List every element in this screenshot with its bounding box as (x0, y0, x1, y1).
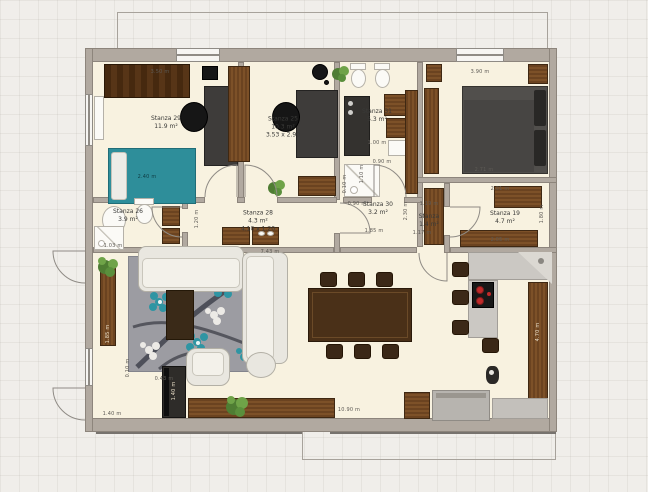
cabinet-box[interactable] (404, 392, 430, 419)
room-name: Stanza 25 (266, 115, 300, 123)
plant[interactable] (224, 394, 250, 420)
dimension-label[interactable]: 2.30 m (403, 202, 409, 221)
room-name: Stanza 19 (490, 210, 520, 218)
dimension-label[interactable]: 2.71 m (475, 167, 494, 173)
office-chair[interactable] (180, 102, 208, 132)
nightstand[interactable] (528, 64, 548, 84)
dimension-label[interactable]: 0.10 m (125, 359, 131, 378)
stool[interactable] (452, 290, 469, 305)
dining-chair[interactable] (376, 272, 393, 287)
terrace-top-outline (117, 12, 548, 50)
dimension-label[interactable]: 7.43 m (261, 249, 280, 255)
burner (476, 286, 484, 294)
room-area: 11.9 m² (151, 123, 181, 131)
dimension-label[interactable]: 0.10 m (342, 175, 348, 194)
dimension-label[interactable]: 0.43 m (155, 376, 174, 382)
desk[interactable] (296, 90, 338, 158)
room-label-stanza-19[interactable]: Stanza 19 4.7 m² (490, 210, 520, 226)
sofa-seat (246, 256, 274, 360)
room-size: 4.10 x 1.20 (241, 225, 275, 233)
door-exterior-left[interactable] (53, 388, 85, 420)
dimension-label[interactable]: 1.20 m (194, 210, 200, 229)
room-area: 3.2 m² (363, 209, 393, 217)
room-label-closet[interactable]: Stanza 1.4 m² (419, 213, 439, 229)
stool[interactable] (426, 64, 442, 82)
dimension-label[interactable]: 3.90 m (471, 69, 490, 75)
pet-dog[interactable] (486, 366, 499, 384)
window-bedroom[interactable] (456, 48, 504, 62)
dimension-label[interactable]: 1.80 m (539, 205, 545, 224)
room-label-stanza-28[interactable]: Stanza 28 4.3 m² 4.10 x 1.20 (241, 209, 275, 232)
room-area: 10.3 m² (266, 123, 300, 131)
tall-cabinet[interactable] (405, 90, 418, 194)
room-area: 4.7 m² (490, 218, 520, 226)
room-area: 1.4 m² (419, 221, 439, 229)
bath-cabinet[interactable] (162, 228, 180, 244)
room-area: 4.3 m² (241, 217, 275, 225)
plant[interactable] (330, 64, 350, 84)
burner-dot (487, 292, 491, 296)
dimension-label[interactable]: 1.00 m (368, 140, 387, 146)
dimension-label[interactable]: 2.01 m (491, 186, 510, 192)
wardrobe[interactable] (104, 64, 190, 98)
dining-table-top (312, 292, 408, 338)
dimension-label[interactable]: 1.10 m (359, 165, 365, 184)
floor-plan-canvas: Stanza 29 11.9 m² Stanza 25 10.3 m² 3.53… (0, 0, 648, 492)
dimension-label[interactable]: 10.90 m (338, 407, 360, 413)
door-entrance[interactable] (53, 251, 85, 283)
room-name: Stanza 31 (362, 108, 392, 116)
dining-chair[interactable] (348, 272, 365, 287)
dimension-label[interactable]: 1.40 m (103, 411, 122, 417)
appliance-controls (436, 393, 486, 398)
floor-lamp[interactable] (312, 64, 328, 80)
dimension-label[interactable]: 3.50 m (151, 69, 170, 75)
plant[interactable] (96, 256, 120, 278)
dimension-label[interactable]: 1.03 m (104, 243, 123, 249)
wall-corridor-c[interactable] (277, 197, 337, 203)
dining-chair[interactable] (354, 344, 371, 359)
room-area: 3.9 m² (113, 216, 143, 224)
bath-cabinet[interactable] (162, 206, 180, 226)
window-top-left[interactable] (176, 48, 220, 62)
room-name: Stanza 30 (363, 201, 393, 209)
plant[interactable] (266, 178, 286, 198)
coffee-table[interactable] (166, 290, 194, 340)
stool[interactable] (482, 338, 499, 353)
wardrobe[interactable] (424, 88, 439, 174)
tall-kitchen-cabinet[interactable] (528, 282, 548, 410)
window-left-upper[interactable] (85, 94, 93, 146)
pillow (111, 152, 127, 200)
room-label-stanza-25[interactable]: Stanza 25 10.3 m² 3.53 x 2.90 (266, 115, 300, 138)
wall-corridor-b[interactable] (237, 197, 245, 203)
room-label-stanza-31[interactable]: Stanza 31 5.3 m² (362, 108, 392, 124)
room-name: Stanza 28 (241, 209, 275, 217)
sofa-seat (142, 258, 240, 288)
printer[interactable] (202, 66, 218, 80)
bidet[interactable] (375, 69, 390, 88)
room-name: Stanza 29 (151, 115, 181, 123)
terrace-edge-line (96, 432, 302, 434)
stool[interactable] (452, 320, 469, 335)
pet-patch (489, 370, 494, 375)
toilet[interactable] (351, 69, 366, 88)
stool[interactable] (452, 262, 469, 277)
room-name: Stanza (419, 213, 439, 221)
sideboard[interactable] (188, 398, 335, 418)
armchair-seat (192, 352, 224, 376)
washer-knob (348, 110, 353, 115)
dimension-label[interactable]: 4.70 m (535, 323, 541, 342)
shower-drain (350, 186, 358, 194)
wall-right[interactable] (549, 48, 557, 432)
dimension-label[interactable]: 1.19 m (420, 201, 439, 207)
counter-base[interactable] (492, 398, 548, 419)
sideboard[interactable] (298, 176, 336, 196)
dimension-label[interactable]: 0.90 m (373, 159, 392, 165)
dimension-label[interactable]: 2.05 m (491, 237, 510, 243)
pillow (534, 90, 546, 126)
bookshelf[interactable] (228, 66, 250, 162)
dining-chair[interactable] (326, 344, 343, 359)
dimension-label[interactable]: 1.85 m (365, 228, 384, 234)
burner (476, 297, 484, 305)
room-area: 5.3 m² (362, 116, 392, 124)
pouf[interactable] (246, 352, 276, 378)
dining-chair[interactable] (320, 272, 337, 287)
faucet (538, 258, 544, 264)
room-label-stanza-30[interactable]: Stanza 30 3.2 m² (363, 201, 393, 217)
dimension-label[interactable]: 0.90 m (348, 201, 367, 207)
bed-blanket (464, 100, 534, 172)
dimension-label[interactable]: 1.17 m (413, 230, 432, 236)
terrace-bottom-outline (302, 430, 556, 460)
wall-living-b[interactable] (340, 247, 417, 253)
washer-knob (348, 101, 353, 106)
dimension-label[interactable]: 2.40 m (138, 174, 157, 180)
room-label-stanza-26[interactable]: Stanza 26 3.9 m² (113, 208, 143, 224)
pillow (534, 130, 546, 166)
room-label-stanza-29[interactable]: Stanza 29 11.9 m² (151, 115, 181, 131)
lamp-base-dot (324, 80, 329, 85)
radiator[interactable] (94, 96, 104, 140)
dimension-label[interactable]: 1.40 m (171, 382, 177, 401)
wall-closet-19a[interactable] (444, 183, 450, 207)
dining-chair[interactable] (382, 344, 399, 359)
room-name: Stanza 26 (113, 208, 143, 216)
wall-bedroom-19[interactable] (417, 177, 557, 183)
window-left-lower[interactable] (85, 348, 93, 386)
dimension-label[interactable]: 1.85 m (105, 325, 111, 344)
room-size: 3.53 x 2.90 (266, 131, 300, 139)
terrace-edge-line (330, 432, 556, 434)
